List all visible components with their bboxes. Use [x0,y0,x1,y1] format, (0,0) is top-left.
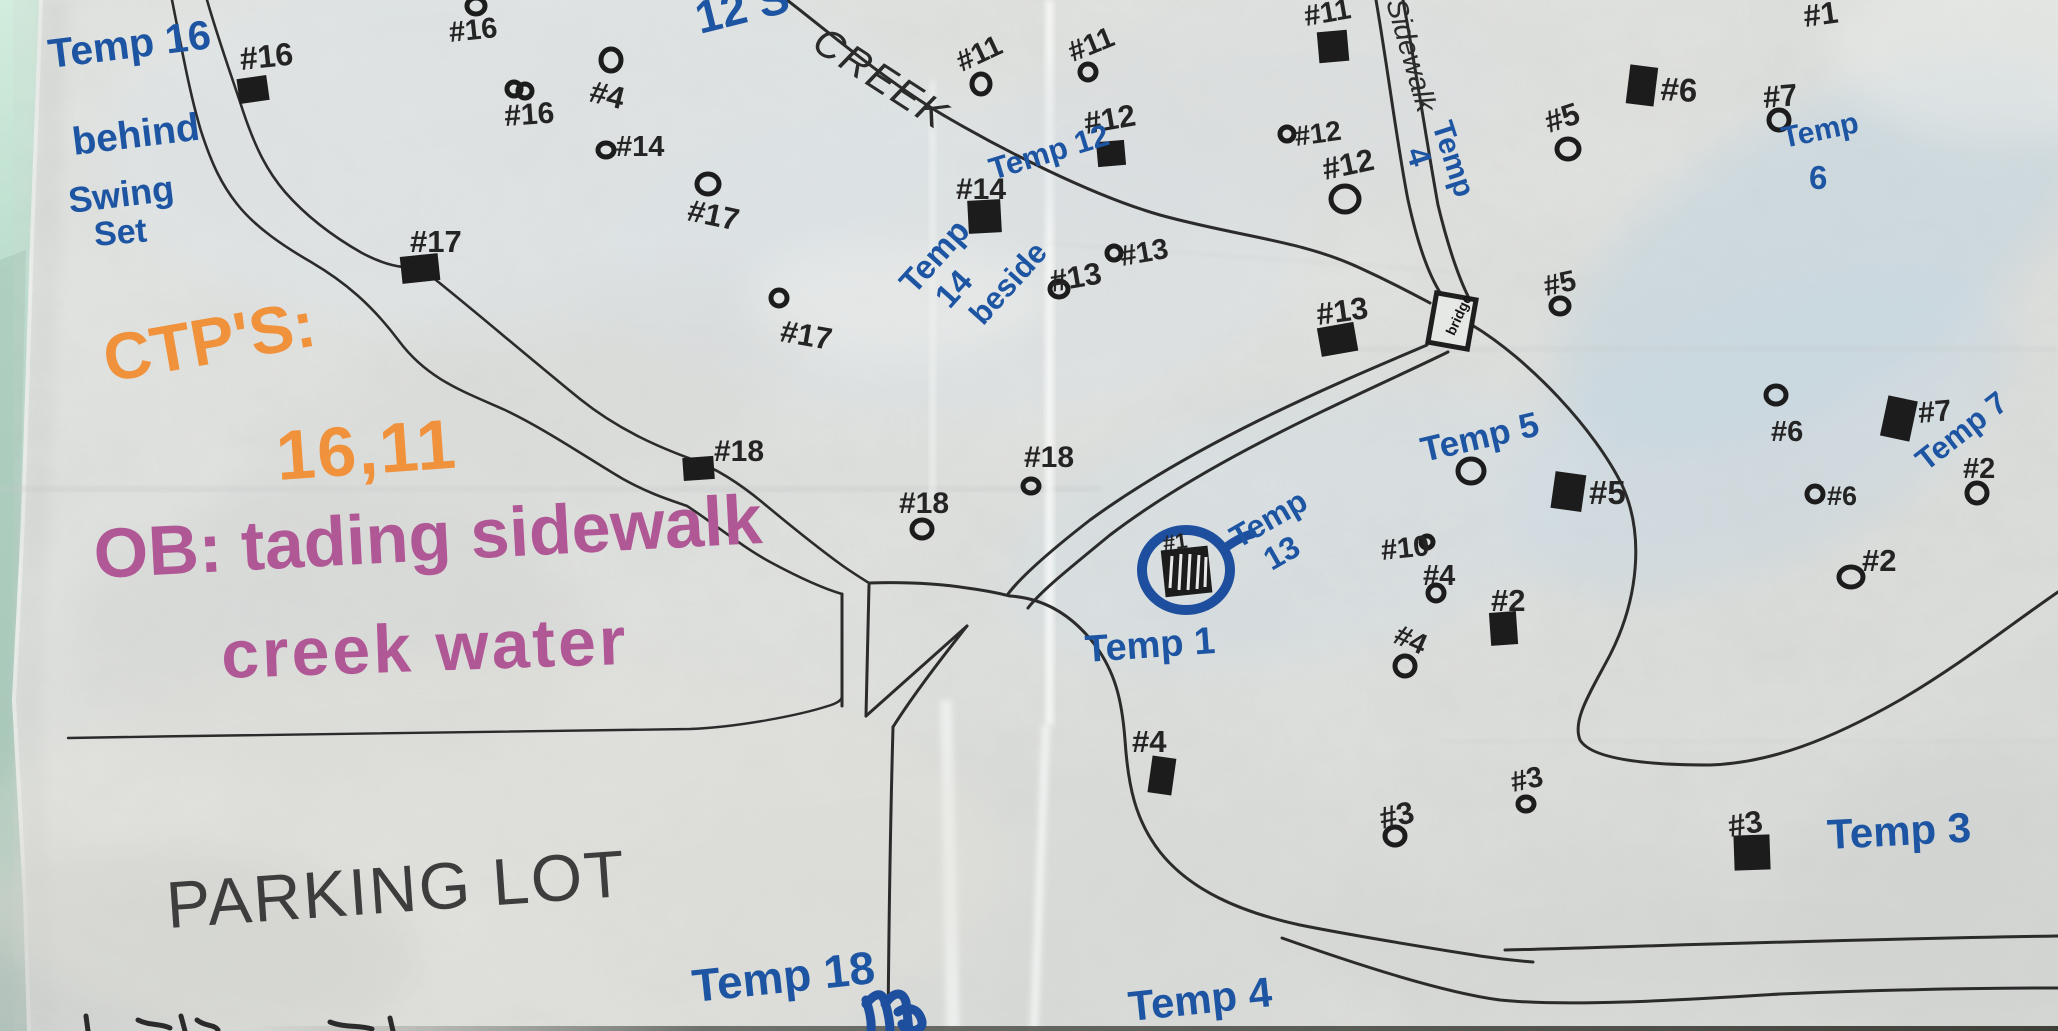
svg-text:#14: #14 [616,131,664,163]
svg-text:#2: #2 [1491,583,1525,618]
svg-text:#18: #18 [1024,441,1074,474]
svg-text:#3: #3 [1376,794,1417,835]
svg-text:#3: #3 [1725,803,1765,843]
svg-text:Set: Set [92,212,148,254]
svg-text:Temp 3: Temp 3 [1826,804,1972,858]
svg-text:#7: #7 [1762,77,1799,115]
svg-text:#12: #12 [1293,115,1344,152]
svg-text:#5: #5 [1589,474,1626,511]
svg-text:#6: #6 [1660,70,1699,109]
svg-text:#17: #17 [410,224,462,259]
svg-text:#18: #18 [899,487,949,520]
svg-text:#18: #18 [714,435,764,468]
svg-text:#13: #13 [1314,290,1370,332]
svg-text:#4: #4 [1132,724,1167,759]
svg-text:#6: #6 [1771,416,1803,448]
svg-text:6: 6 [1809,159,1827,196]
svg-text:creek water: creek water [220,603,630,693]
svg-text:#2: #2 [1963,453,1995,485]
svg-text:#2: #2 [1862,543,1896,578]
svg-text:#1: #1 [1801,0,1840,34]
svg-text:#16: #16 [238,36,295,77]
svg-text:#1: #1 [1161,528,1189,556]
svg-text:#5: #5 [1541,265,1579,303]
svg-text:#6: #6 [1827,481,1857,511]
svg-text:#16: #16 [503,97,555,133]
svg-text:16,11: 16,11 [274,405,460,495]
svg-text:#16: #16 [447,12,498,49]
svg-text:#3: #3 [1508,761,1546,799]
svg-text:#4: #4 [1423,560,1455,592]
